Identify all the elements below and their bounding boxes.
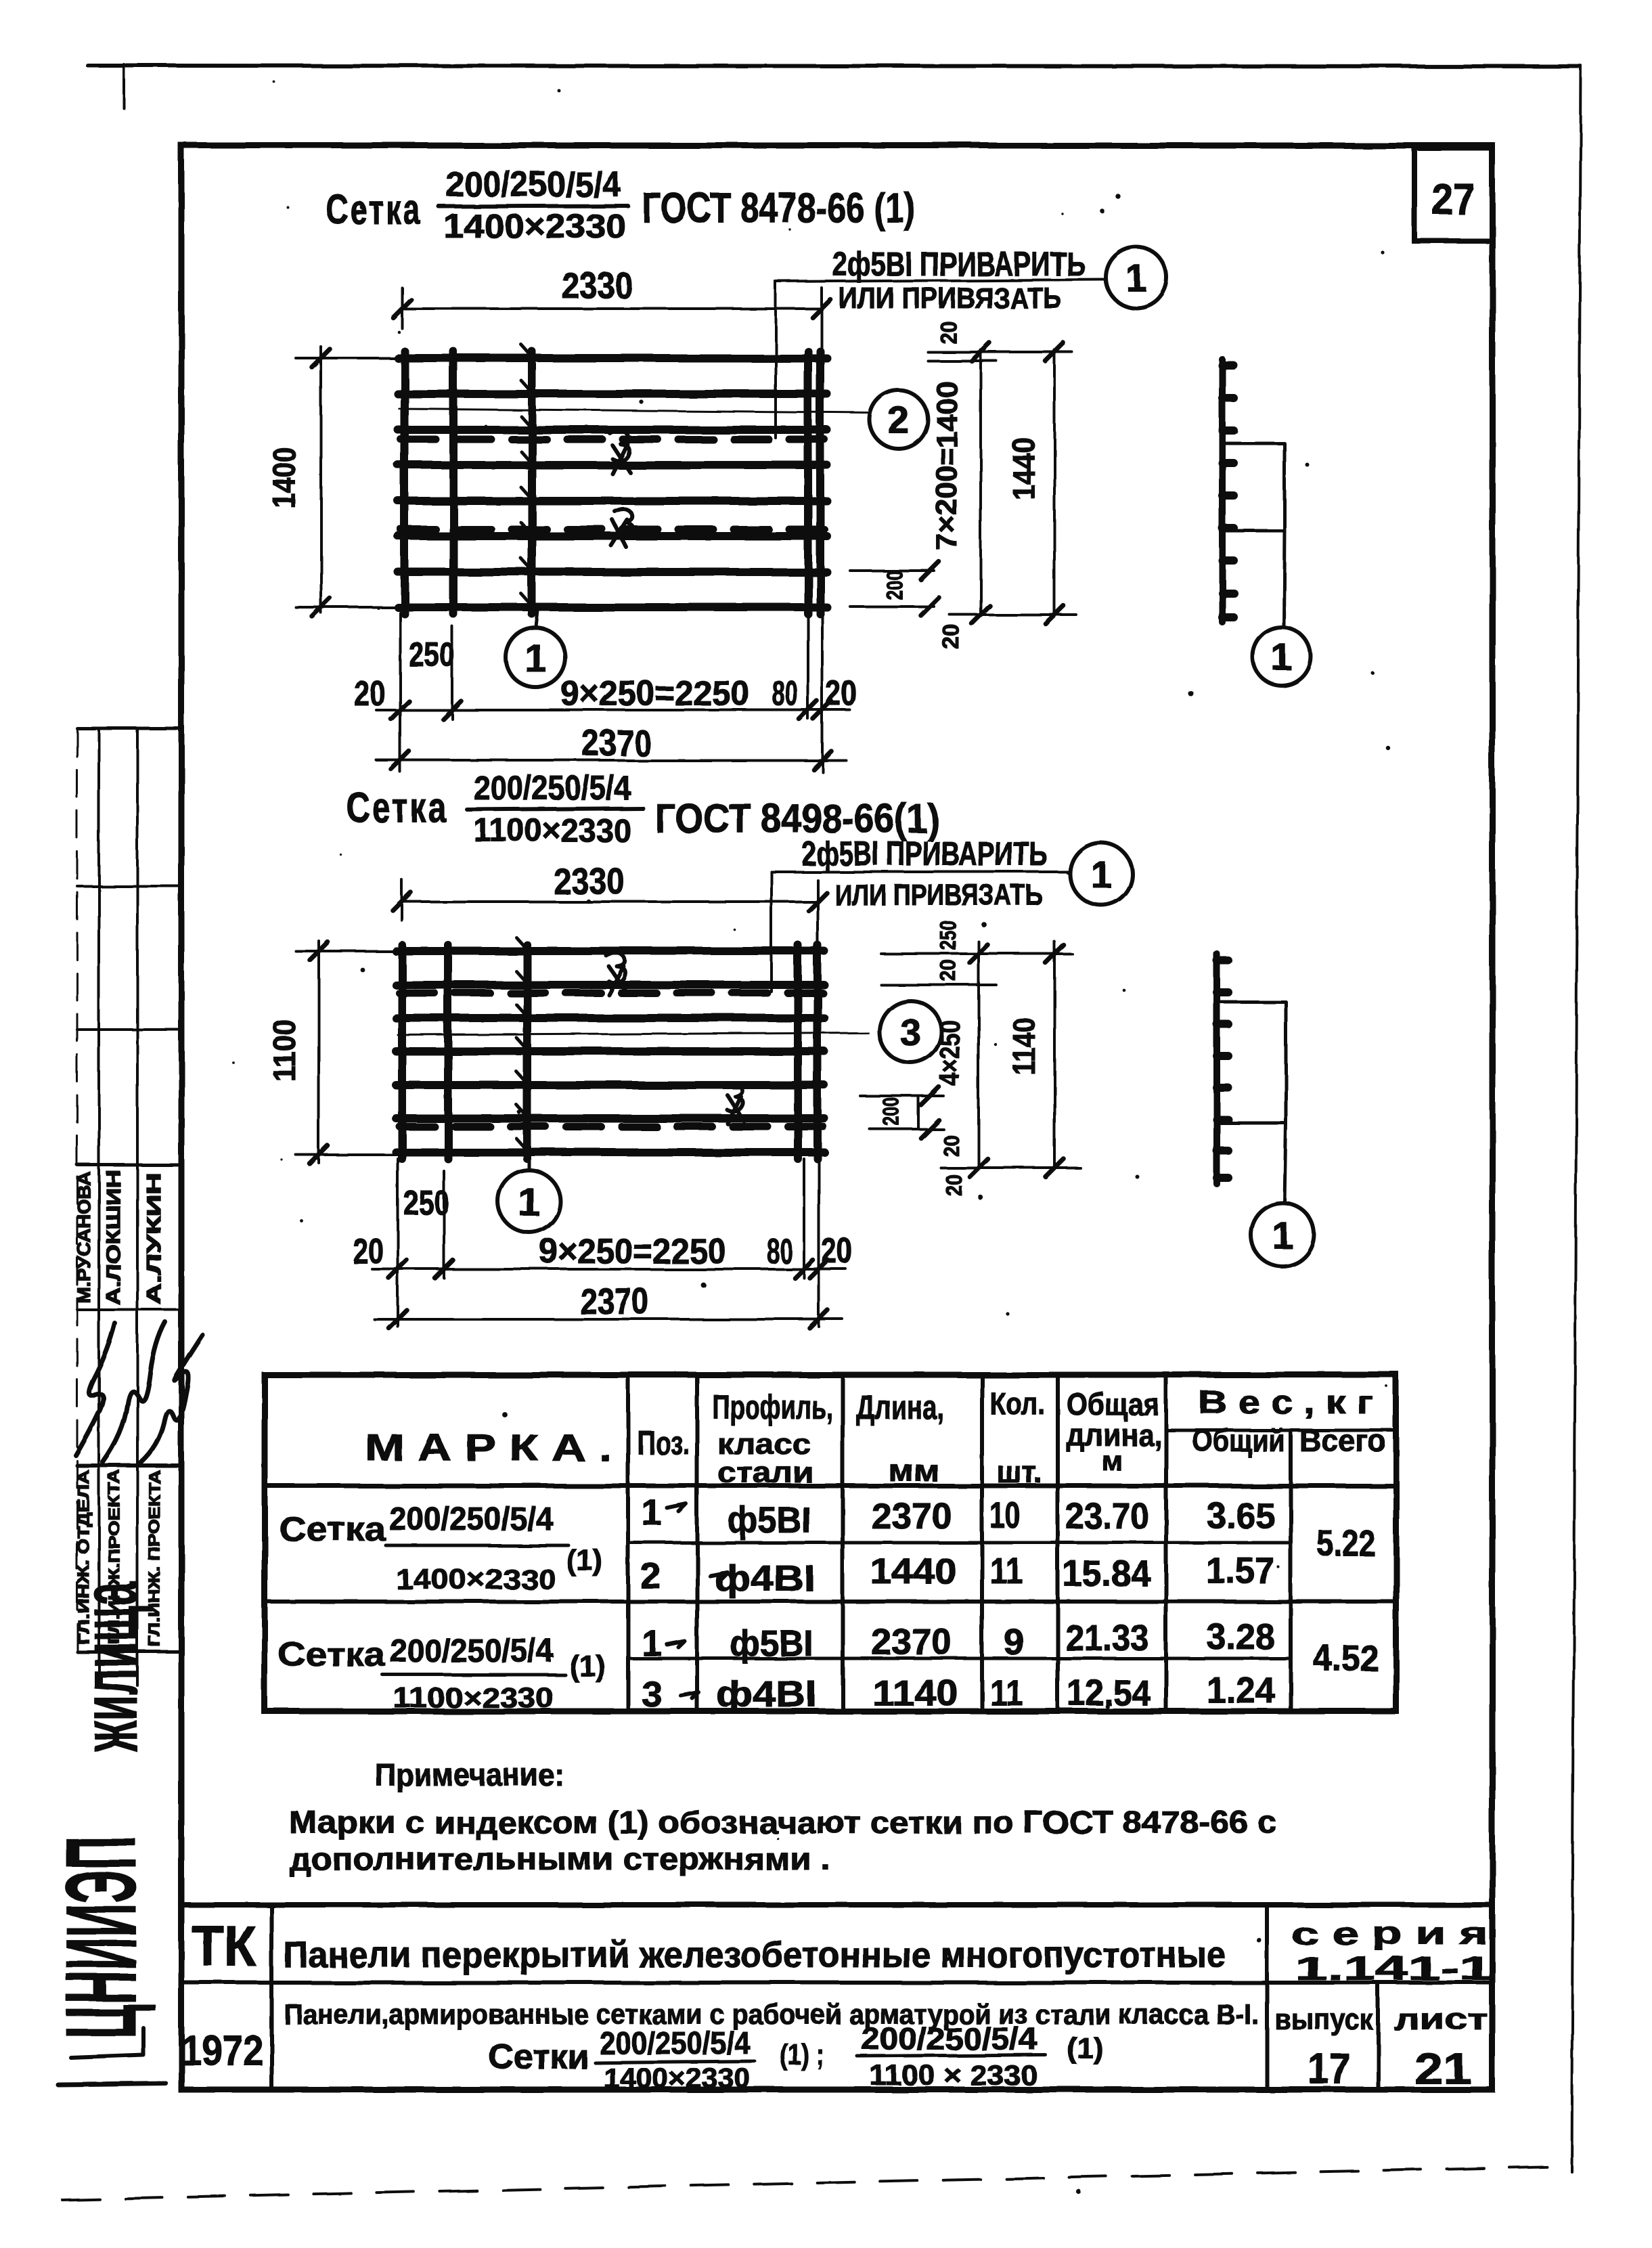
svg-text:1: 1 [1272, 1214, 1293, 1256]
svg-text:10: 10 [990, 1495, 1021, 1536]
svg-text:Профиль,: Профиль, [713, 1388, 833, 1426]
svg-text:5.22: 5.22 [1317, 1523, 1375, 1564]
svg-text:жилища: жилища [65, 1581, 154, 1751]
svg-text:1.57: 1.57 [1207, 1551, 1275, 1591]
svg-text:3.65: 3.65 [1207, 1495, 1275, 1536]
svg-text:ТК: ТК [192, 1914, 257, 1978]
svg-text:Сетка: Сетка [347, 785, 448, 831]
svg-text:20: 20 [353, 1232, 384, 1271]
svg-text:ИЛИ ПРИВЯЗАТЬ: ИЛИ ПРИВЯЗАТЬ [839, 282, 1062, 315]
svg-text:Всего: Всего [1299, 1423, 1386, 1458]
svg-text:2: 2 [640, 1556, 661, 1596]
svg-text:23.70: 23.70 [1066, 1496, 1149, 1537]
svg-text:Длина,: Длина, [856, 1388, 944, 1426]
svg-text:200/250/5/4: 200/250/5/4 [600, 2025, 751, 2060]
svg-text:выпуск: выпуск [1275, 2003, 1374, 2036]
svg-text:(1): (1) [569, 1650, 606, 1683]
svg-text:ф4ВI: ф4ВI [715, 1558, 816, 1599]
svg-text:1.141-1: 1.141-1 [1295, 1949, 1492, 1987]
svg-text:17: 17 [1308, 2044, 1350, 2093]
svg-text:1100×2330: 1100×2330 [393, 1681, 554, 1713]
svg-text:1: 1 [642, 1493, 662, 1533]
svg-text:Кол.: Кол. [989, 1386, 1045, 1421]
svg-text:Сетка: Сетка [326, 186, 422, 233]
svg-text:20: 20 [939, 624, 964, 650]
svg-text:1: 1 [1090, 853, 1111, 896]
svg-text:Общий: Общий [1192, 1423, 1285, 1458]
svg-text:Поз.: Поз. [637, 1424, 690, 1461]
svg-text:80: 80 [767, 1232, 792, 1271]
svg-text:2370: 2370 [580, 1281, 649, 1322]
svg-text:20: 20 [936, 960, 960, 982]
svg-text:2370: 2370 [582, 723, 651, 764]
svg-text:ИЛИ ПРИВЯЗАТЬ: ИЛИ ПРИВЯЗАТЬ [834, 879, 1043, 912]
svg-text:1100: 1100 [267, 1019, 302, 1082]
svg-text:9: 9 [1004, 1622, 1024, 1662]
svg-text:ф4ВI: ф4ВI [717, 1674, 818, 1715]
svg-text:1440: 1440 [1006, 437, 1041, 500]
svg-text:1400: 1400 [267, 447, 302, 509]
svg-text:Сетка: Сетка [279, 1510, 386, 1548]
svg-text:М А Р К А .: М А Р К А . [365, 1426, 612, 1469]
svg-text:1: 1 [1125, 257, 1146, 299]
svg-text:Марки с индексом (1) обоз: Марки с индексом (1) обозначают сетки по… [289, 1805, 1277, 1840]
svg-text:200/250/5/4: 200/250/5/4 [389, 1501, 553, 1537]
svg-text:2ф5ВI ПРИВАРИТЬ: 2ф5ВI ПРИВАРИТЬ [832, 245, 1086, 283]
svg-text:шт.: шт. [997, 1454, 1042, 1489]
svg-text:2: 2 [888, 399, 909, 441]
svg-text:27: 27 [1431, 175, 1475, 223]
svg-text:3: 3 [642, 1674, 662, 1715]
svg-text:2330: 2330 [554, 861, 625, 902]
svg-text:200/250/5/4: 200/250/5/4 [446, 165, 621, 204]
svg-text:Панели перекрытий железобетонн: Панели перекрытий железобетонные многопу… [284, 1935, 1226, 1975]
svg-text:4×250: 4×250 [934, 1020, 966, 1086]
svg-text:(1): (1) [1067, 2031, 1103, 2065]
svg-text:1140: 1140 [1006, 1018, 1042, 1076]
svg-text:7×200=1400: 7×200=1400 [931, 381, 964, 551]
svg-text:9×250=2250: 9×250=2250 [539, 1232, 726, 1271]
svg-text:ф5ВI: ф5ВI [728, 1500, 811, 1541]
svg-text:1400×2330: 1400×2330 [444, 207, 626, 245]
svg-text:200: 200 [882, 570, 908, 600]
svg-text:лист: лист [1394, 2003, 1488, 2036]
svg-text:ф5ВI: ф5ВI [730, 1623, 813, 1664]
svg-text:200/250/5/4: 200/250/5/4 [390, 1633, 554, 1669]
svg-text:20: 20 [941, 1174, 966, 1195]
svg-text:250: 250 [403, 1184, 449, 1222]
svg-text:21.33: 21.33 [1066, 1618, 1149, 1658]
svg-text:1: 1 [1271, 636, 1292, 678]
svg-text:11: 11 [990, 1551, 1023, 1591]
svg-text:мм: мм [889, 1453, 939, 1488]
svg-text:3.28: 3.28 [1207, 1616, 1275, 1657]
svg-text:11: 11 [990, 1673, 1023, 1713]
svg-text:Сетки: Сетки [489, 2037, 589, 2077]
svg-text:ГОСТ 8478-66 (1): ГОСТ 8478-66 (1) [642, 185, 915, 232]
svg-text:с е р и я: с е р и я [1291, 1916, 1488, 1951]
svg-text:250: 250 [936, 921, 960, 950]
svg-text:(1): (1) [566, 1544, 603, 1577]
svg-text:А.ЛУКИН: А.ЛУКИН [143, 1173, 165, 1305]
svg-text:Панели,армированные сетками с: Панели,армированные сетками с рабочей ар… [284, 1998, 1259, 2030]
svg-text:Сетка: Сетка [278, 1635, 386, 1673]
svg-text:1: 1 [518, 1181, 540, 1225]
svg-text:1972: 1972 [181, 2027, 263, 2074]
svg-text:9×250=2250: 9×250=2250 [561, 674, 750, 713]
svg-text:2370: 2370 [872, 1622, 952, 1662]
svg-text:20: 20 [939, 1134, 963, 1156]
svg-text:А.ЛОКШИН: А.ЛОКШИН [103, 1170, 125, 1305]
svg-text:М.РУСАНОВА: М.РУСАНОВА [74, 1172, 94, 1304]
svg-text:15.84: 15.84 [1063, 1553, 1151, 1594]
svg-text:ЦНИИЭП: ЦНИИЭП [45, 1836, 157, 2039]
svg-text:дополнительными стержнями: дополнительными стержнями . [289, 1841, 830, 1876]
svg-text:1: 1 [642, 1623, 662, 1664]
svg-text:200/250/5/4: 200/250/5/4 [474, 769, 631, 807]
svg-text:1100 × 2330: 1100 × 2330 [870, 2059, 1037, 2091]
svg-text:20: 20 [936, 321, 962, 344]
svg-text:20: 20 [354, 674, 385, 713]
svg-text:1440: 1440 [871, 1551, 957, 1592]
svg-text:200: 200 [878, 1097, 904, 1126]
svg-text:(1) ;: (1) ; [780, 2038, 824, 2071]
svg-text:Примечание:: Примечание: [375, 1757, 564, 1792]
svg-text:20: 20 [822, 1232, 853, 1271]
svg-text:В е с , к г: В е с , к г [1199, 1385, 1373, 1421]
svg-text:200/250/5/4: 200/250/5/4 [862, 2021, 1037, 2056]
svg-text:250: 250 [409, 636, 455, 674]
svg-text:20: 20 [826, 674, 857, 713]
svg-text:1100×2330: 1100×2330 [474, 813, 631, 849]
svg-text:1140: 1140 [872, 1673, 958, 1713]
svg-text:2370: 2370 [872, 1496, 952, 1537]
svg-text:2330: 2330 [562, 265, 633, 306]
svg-text:80: 80 [772, 674, 798, 713]
svg-text:1400×2330: 1400×2330 [604, 2062, 751, 2094]
svg-text:3: 3 [899, 1011, 920, 1053]
svg-text:21: 21 [1414, 2044, 1472, 2093]
svg-text:стали: стали [717, 1456, 813, 1489]
svg-text:1.24: 1.24 [1207, 1670, 1275, 1711]
svg-text:м: м [1101, 1445, 1122, 1476]
svg-text:2ф5ВI ПРИВАРИТЬ: 2ф5ВI ПРИВАРИТЬ [802, 835, 1048, 873]
svg-text:1: 1 [524, 636, 546, 680]
svg-text:4.52: 4.52 [1314, 1638, 1379, 1679]
svg-text:1400×2330: 1400×2330 [396, 1563, 556, 1595]
